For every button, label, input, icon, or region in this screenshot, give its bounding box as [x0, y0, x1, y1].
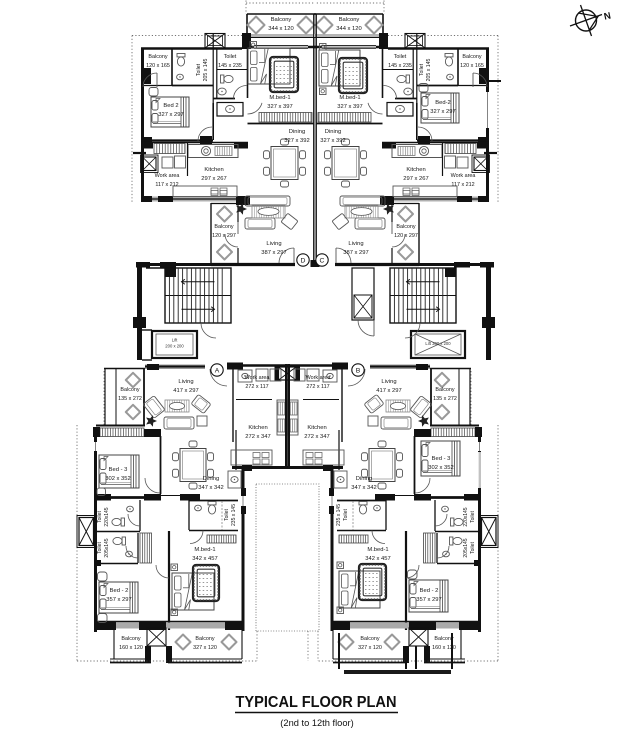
svg-text:Balcony: Balcony [434, 636, 453, 642]
svg-text:Work area: Work area [306, 375, 331, 381]
svg-text:Lift 300 x 200: Lift 300 x 200 [425, 341, 451, 346]
svg-text:D: D [301, 257, 306, 264]
svg-text:Work area: Work area [155, 173, 180, 179]
svg-text:Living: Living [266, 241, 281, 247]
svg-text:342 x 457: 342 x 457 [365, 556, 390, 562]
svg-text:302 x 352: 302 x 352 [105, 476, 130, 482]
svg-text:Dining: Dining [325, 129, 341, 135]
svg-text:Balcony: Balcony [195, 636, 214, 642]
svg-text:Kitchen: Kitchen [204, 167, 223, 173]
svg-text:117 x 212: 117 x 212 [155, 182, 178, 188]
svg-text:417 x 297: 417 x 297 [376, 388, 401, 394]
svg-text:272 x 117: 272 x 117 [306, 384, 329, 390]
svg-text:417 x 297: 417 x 297 [173, 388, 198, 394]
svg-text:Dining: Dining [356, 476, 372, 482]
svg-text:Living: Living [381, 379, 396, 385]
svg-text:120 x 165: 120 x 165 [460, 63, 484, 69]
svg-text:Kitchen: Kitchen [307, 425, 326, 431]
svg-text:Toilet: Toilet [196, 63, 202, 76]
svg-text:344 x 120: 344 x 120 [268, 26, 293, 32]
svg-text:Work area: Work area [451, 173, 476, 179]
svg-text:Balcony: Balcony [120, 387, 139, 393]
svg-text:Balcony: Balcony [271, 17, 292, 23]
svg-text:120 x 297: 120 x 297 [212, 233, 236, 239]
svg-text:Toilet: Toilet [343, 509, 349, 521]
svg-text:Living: Living [348, 241, 363, 247]
svg-text:327 x 397: 327 x 397 [337, 104, 362, 110]
svg-text:387 x 297: 387 x 297 [261, 250, 286, 256]
svg-text:M.bed-1: M.bed-1 [194, 547, 215, 553]
svg-text:Bed - 3: Bed - 3 [109, 467, 128, 473]
svg-text:Toilet: Toilet [224, 54, 237, 60]
svg-text:Kitchen: Kitchen [248, 425, 267, 431]
svg-text:387 x 297: 387 x 297 [343, 250, 368, 256]
svg-text:Work area: Work area [245, 375, 270, 381]
svg-text:Toilet: Toilet [470, 511, 476, 523]
svg-text:205x145: 205x145 [463, 538, 469, 557]
svg-text:Toilet: Toilet [470, 542, 476, 554]
svg-text:297 x 267: 297 x 267 [201, 176, 226, 182]
svg-text:357 x 297: 357 x 297 [416, 597, 441, 603]
svg-text:Lift: Lift [172, 338, 178, 343]
svg-text:200 x 200: 200 x 200 [165, 344, 184, 349]
svg-text:235 x 145: 235 x 145 [336, 504, 342, 526]
svg-text:357 x 297: 357 x 297 [106, 597, 131, 603]
svg-text:Toilet: Toilet [419, 63, 425, 76]
svg-text:347 x 342: 347 x 342 [198, 485, 223, 491]
svg-text:Balcony: Balcony [462, 54, 481, 60]
svg-text:Bed - 3: Bed - 3 [432, 456, 451, 462]
svg-text:Toilet: Toilet [224, 509, 230, 521]
svg-text:135 x 272: 135 x 272 [118, 396, 142, 402]
svg-text:TYPICAL FLOOR PLAN: TYPICAL FLOOR PLAN [236, 694, 397, 711]
svg-text:M.bed-1: M.bed-1 [339, 95, 360, 101]
svg-text:135 x 272: 135 x 272 [433, 396, 457, 402]
svg-text:205 x 145: 205 x 145 [426, 58, 432, 81]
svg-text:220x145: 220x145 [463, 507, 469, 526]
svg-text:C: C [320, 257, 325, 264]
svg-text:327 x 297: 327 x 297 [158, 112, 183, 118]
svg-text:145 x 235: 145 x 235 [388, 63, 412, 69]
svg-text:327 x 120: 327 x 120 [193, 645, 217, 651]
svg-text:Balcony: Balcony [339, 17, 360, 23]
svg-text:Kitchen: Kitchen [406, 167, 425, 173]
svg-text:120 x 165: 120 x 165 [146, 63, 170, 69]
svg-text:220x145: 220x145 [104, 507, 110, 526]
svg-text:120 x 297: 120 x 297 [394, 233, 418, 239]
svg-text:Bed - 2: Bed - 2 [110, 588, 129, 594]
svg-text:M.bed-1: M.bed-1 [269, 95, 290, 101]
svg-text:Living: Living [178, 379, 193, 385]
svg-text:Balcony: Balcony [360, 636, 379, 642]
svg-text:272 x 347: 272 x 347 [304, 434, 329, 440]
svg-text:344 x 120: 344 x 120 [336, 26, 361, 32]
svg-text:Bed 2: Bed 2 [163, 103, 178, 109]
svg-text:Toilet: Toilet [97, 511, 103, 523]
svg-text:117 x 212: 117 x 212 [451, 182, 474, 188]
svg-text:Dining: Dining [289, 129, 305, 135]
svg-text:A: A [215, 367, 220, 374]
svg-text:327 x 392: 327 x 392 [320, 138, 345, 144]
svg-text:Balcony: Balcony [121, 636, 140, 642]
svg-text:347 x 342: 347 x 342 [351, 485, 376, 491]
svg-text:Toilet: Toilet [394, 54, 407, 60]
svg-text:342 x 457: 342 x 457 [192, 556, 217, 562]
svg-text:327 x 397: 327 x 397 [267, 104, 292, 110]
svg-text:(2nd to 12th floor): (2nd to 12th floor) [280, 718, 353, 728]
svg-text:Dining: Dining [203, 476, 219, 482]
svg-text:Balcony: Balcony [148, 54, 167, 60]
svg-text:Bed - 2: Bed - 2 [420, 588, 439, 594]
svg-text:Balcony: Balcony [214, 224, 233, 230]
svg-text:235 x 145: 235 x 145 [231, 504, 237, 526]
svg-text:M.bed-1: M.bed-1 [367, 547, 388, 553]
svg-text:302 x 352: 302 x 352 [428, 465, 453, 471]
svg-text:297 x 267: 297 x 267 [403, 176, 428, 182]
svg-text:205x145: 205x145 [104, 538, 110, 557]
svg-text:B: B [356, 367, 361, 374]
svg-text:327 x 120: 327 x 120 [358, 645, 382, 651]
svg-text:Balcony: Balcony [396, 224, 415, 230]
svg-text:272 x 117: 272 x 117 [245, 384, 268, 390]
svg-text:Balcony: Balcony [435, 387, 454, 393]
svg-text:205 x 145: 205 x 145 [203, 58, 209, 81]
svg-text:272 x 347: 272 x 347 [245, 434, 270, 440]
svg-text:Toilet: Toilet [97, 542, 103, 554]
svg-text:327 x 392: 327 x 392 [284, 138, 309, 144]
svg-text:145 x 235: 145 x 235 [218, 63, 242, 69]
svg-text:160 x 120: 160 x 120 [432, 645, 456, 651]
svg-text:Bed-2: Bed-2 [435, 100, 450, 106]
svg-text:160 x 120: 160 x 120 [119, 645, 143, 651]
svg-text:327 x 297: 327 x 297 [430, 109, 455, 115]
